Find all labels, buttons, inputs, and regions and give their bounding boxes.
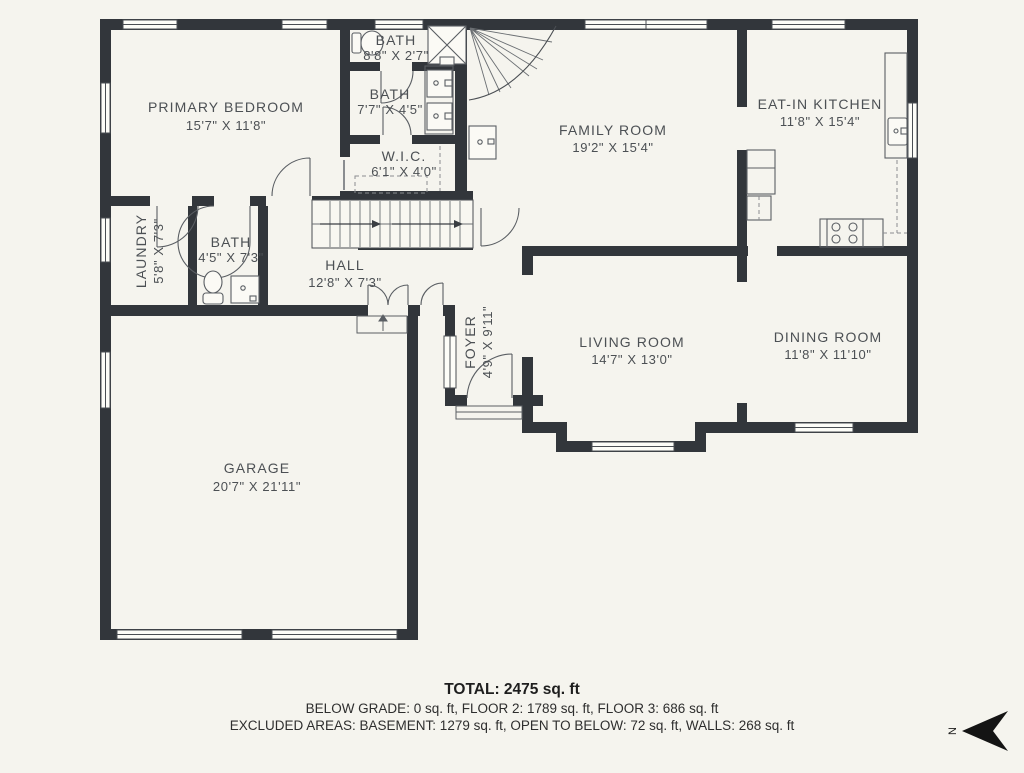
- double-vanity-icon: [425, 66, 453, 134]
- floor-plan: PRIMARY BEDROOM 15'7" X 11'8" BATH 8'8" …: [0, 0, 1024, 768]
- room-dims-garage: 20'7" X 21'11": [213, 479, 301, 494]
- room-dims-bath-top: 8'8" X 2'7": [363, 48, 429, 63]
- excluded-areas-text: EXCLUDED AREAS: BASEMENT: 1279 sq. ft, O…: [0, 717, 1024, 734]
- sink-icon: [231, 276, 259, 303]
- room-dims-wic: 6'1" X 4'0": [371, 164, 437, 179]
- room-label-family-room: FAMILY ROOM: [559, 122, 667, 138]
- room-dims-foyer: 4'9" X 9'11": [480, 306, 495, 378]
- area-summary: TOTAL: 2475 sq. ft BELOW GRADE: 0 sq. ft…: [0, 680, 1024, 734]
- room-dims-bath-hall: 4'5" X 7'3": [198, 250, 264, 265]
- shower-icon: [428, 26, 466, 65]
- room-dims-eat-in-kitchen: 11'8" X 15'4": [780, 114, 860, 129]
- room-label-laundry: LAUNDRY: [133, 214, 149, 288]
- room-label-hall: HALL: [325, 257, 364, 273]
- floor-plan-svg: PRIMARY BEDROOM 15'7" X 11'8" BATH 8'8" …: [0, 0, 1024, 768]
- kitchen-sink-icon: [888, 118, 907, 145]
- interior-walls: [100, 19, 907, 433]
- room-label-eat-in-kitchen: EAT-IN KITCHEN: [758, 96, 883, 112]
- room-label-garage: GARAGE: [224, 460, 291, 476]
- garage-step: [357, 315, 407, 333]
- floor-areas-text: BELOW GRADE: 0 sq. ft, FLOOR 2: 1789 sq.…: [0, 700, 1024, 717]
- toilet-icon: [203, 271, 223, 304]
- room-dims-living-room: 14'7" X 13'0": [591, 352, 672, 367]
- room-dims-bath-primary: 7'7" X 4'5": [357, 102, 423, 117]
- kitchen-upper-cabinets: [759, 160, 907, 233]
- stove-icon: [827, 219, 863, 247]
- room-label-dining-room: DINING ROOM: [774, 329, 883, 345]
- room-label-bath-top: BATH: [376, 32, 417, 48]
- total-area-text: TOTAL: 2475 sq. ft: [0, 680, 1024, 700]
- kitchen-fixtures: [747, 53, 907, 247]
- room-label-primary-bedroom: PRIMARY BEDROOM: [148, 99, 304, 115]
- room-dims-primary-bedroom: 15'7" X 11'8": [186, 118, 266, 133]
- room-label-wic: W.I.C.: [382, 148, 427, 164]
- room-label-living-room: LIVING ROOM: [579, 334, 684, 350]
- toilet-icon: [352, 33, 361, 53]
- room-label-foyer: FOYER: [462, 315, 478, 369]
- cabinet-sink-icon: [469, 126, 496, 159]
- room-label-bath-hall: BATH: [211, 234, 252, 250]
- fridge-icon: [747, 150, 775, 194]
- room-dims-dining-room: 11'8" X 11'10": [784, 347, 871, 362]
- curved-staircase: [469, 26, 556, 100]
- room-dims-laundry: 5'8" X 7'3": [151, 218, 166, 284]
- room-label-bath-primary: BATH: [370, 86, 411, 102]
- staircase: [312, 200, 473, 248]
- room-dims-family-room: 19'2" X 15'4": [572, 140, 653, 155]
- room-dims-hall: 12'8" X 7'3": [308, 275, 381, 290]
- porch-step: [456, 406, 522, 419]
